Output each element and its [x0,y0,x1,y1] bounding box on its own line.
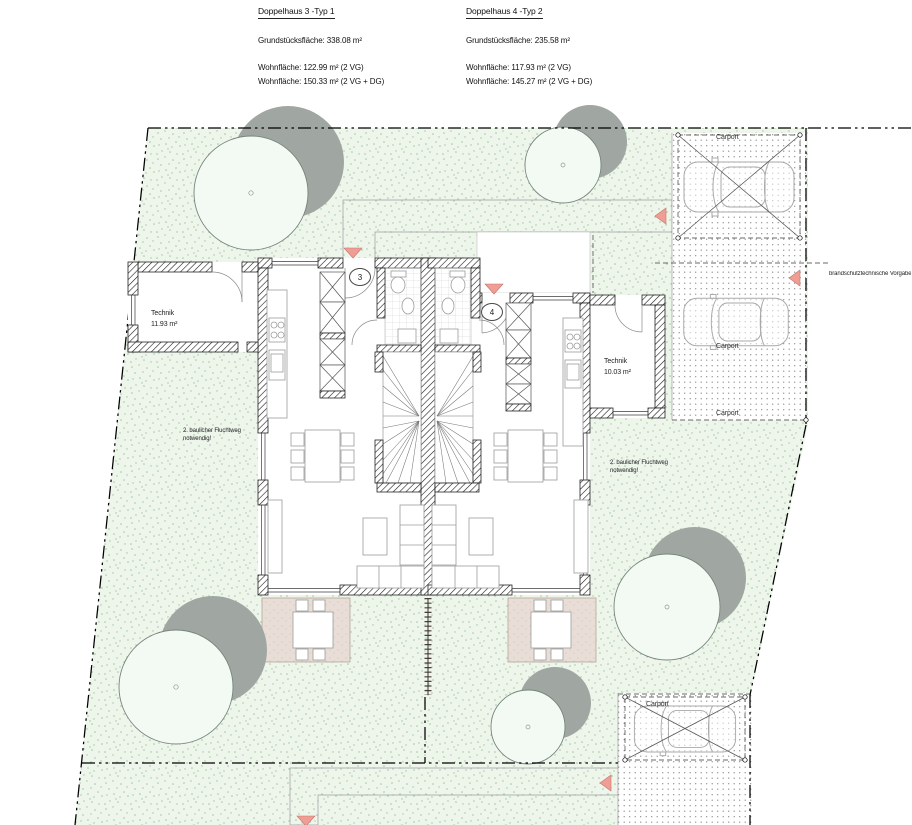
technik-right-label: Technik 10.03 m² [604,356,631,378]
house-4-living-area-dg: Wohnfläche: 145.27 m² (2 VG + DG) [466,77,592,86]
carport-label-bottom: Carport [646,701,669,708]
house-3-living-area-dg: Wohnfläche: 150.33 m² (2 VG + DG) [258,77,384,86]
technik-right-name: Technik [604,356,631,367]
wardrobe-left-a [320,272,345,339]
house-3-plot-area: Grundstücksfläche: 338.08 m² [258,36,362,45]
carport-label-middle-2: Carport [716,410,739,417]
tree-2 [525,127,601,203]
house-3-header: Doppelhaus 3 -Typ 1 [258,6,335,16]
escape-route-note-left: 2. baulicher Fluchtweg notwendig! [183,428,241,442]
wardrobe-right-b [506,364,531,411]
dining-right [494,430,557,482]
unit-number-4: 4 [481,303,503,321]
site-plan-canvas: Doppelhaus 3 -Typ 1 Grundstücksfläche: 3… [0,0,912,825]
wardrobe-right-a [506,303,531,364]
kitchen-left [267,290,287,418]
tree-5 [491,690,565,764]
carport-zone-bottom [618,693,753,825]
dining-left [291,430,354,482]
escape-route-note-right: 2. baulicher Fluchtweg notwendig! [610,460,668,474]
car-middle [684,294,789,349]
tree-1 [194,136,308,250]
house-4-living-area-vg: Wohnfläche: 117.93 m² (2 VG) [466,63,571,72]
house-3-title: Doppelhaus 3 -Typ 1 [258,6,335,19]
house-4-plot-area: Grundstücksfläche: 235.58 m² [466,36,570,45]
house-4-title: Doppelhaus 4 -Typ 2 [466,6,543,19]
unit-number-3: 3 [349,268,371,286]
carport-zone-top [672,133,806,420]
technik-left-label: Technik 11.93 m² [151,308,177,330]
wardrobe-left-b [320,339,345,398]
carport-label-middle-1: Carport [716,343,739,350]
technik-left-name: Technik [151,308,177,319]
house-4-header: Doppelhaus 4 -Typ 2 [466,6,543,16]
technik-right-area: 10.03 m² [604,367,631,378]
site-plan-drawing [0,0,912,825]
house-3-living-area-vg: Wohnfläche: 122.99 m² (2 VG) [258,63,364,72]
tree-3 [119,630,233,744]
technik-left-area: 11.93 m² [151,319,177,330]
carport-label-top: Carport [716,134,739,141]
kitchen-right [563,318,583,446]
tree-4 [614,554,720,660]
fire-protection-note: brandschutztechnische Vorgaben Sta [829,271,911,277]
